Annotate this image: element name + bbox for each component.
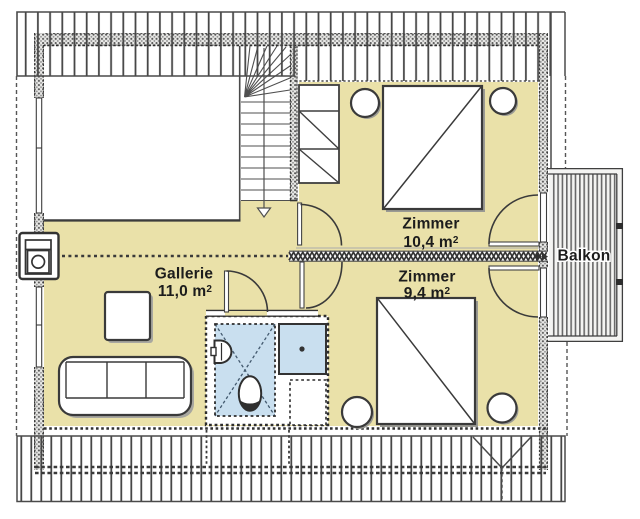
svg-text:9,4 m2: 9,4 m2 (404, 285, 451, 302)
svg-text:11,0 m2: 11,0 m2 (158, 283, 213, 300)
svg-text:10,4 m2: 10,4 m2 (403, 234, 458, 251)
svg-text:Zimmer: Zimmer (398, 269, 455, 286)
svg-text:Zimmer: Zimmer (402, 216, 459, 233)
svg-text:Gallerie: Gallerie (155, 266, 214, 283)
svg-text:Balkon: Balkon (558, 248, 611, 265)
